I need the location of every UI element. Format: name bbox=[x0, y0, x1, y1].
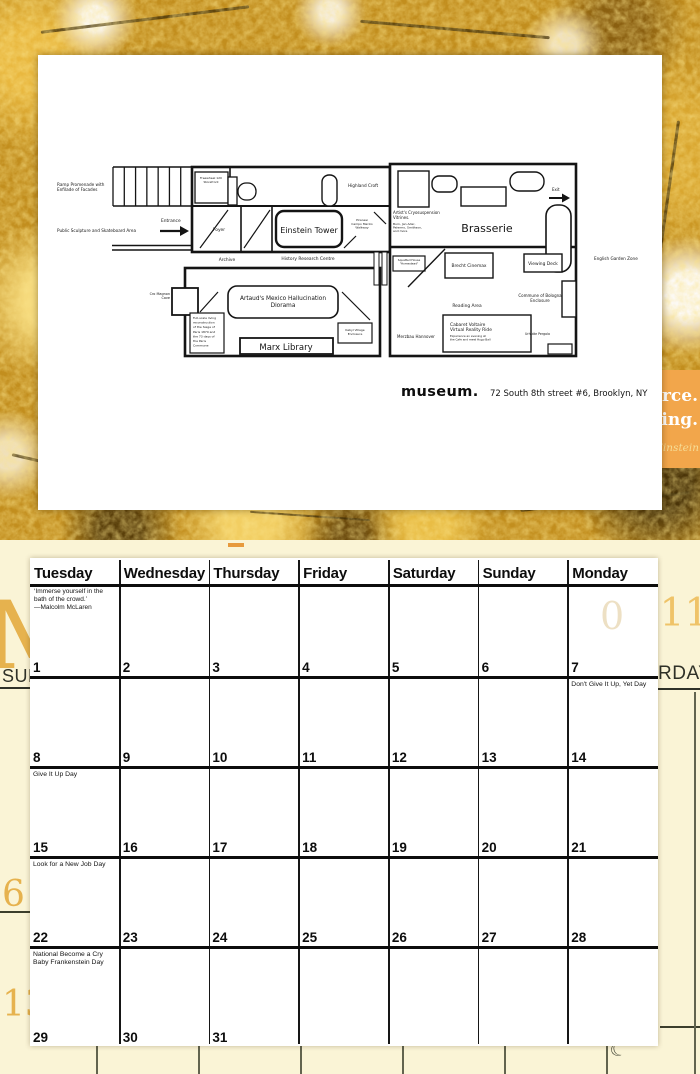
underlay-rule bbox=[0, 687, 30, 689]
peek-quote-attribution: Einstein bbox=[660, 442, 699, 454]
label-exit: Exit bbox=[552, 187, 560, 192]
date-18: 18 bbox=[302, 841, 317, 855]
cro-magnon-cave-room bbox=[172, 288, 198, 315]
calendar-grid-line bbox=[567, 560, 569, 1044]
day-header-monday: Monday bbox=[572, 565, 627, 582]
orange-tab-mark bbox=[228, 543, 244, 547]
fixture bbox=[382, 252, 387, 285]
quote-malcolm-mclaren: ‘Immerse yourself in the bath of the cro… bbox=[34, 588, 116, 612]
date-15: 15 bbox=[33, 841, 48, 855]
week-rule bbox=[30, 766, 658, 769]
peek-text-fragment: ding. bbox=[660, 410, 698, 430]
underlay-year-showthrough: 0 bbox=[600, 594, 624, 638]
day-header-tuesday: Tuesday bbox=[34, 565, 92, 582]
page-grid-line bbox=[606, 1046, 608, 1074]
label-highland-croft: Highland Croft bbox=[348, 183, 379, 188]
date-1: 1 bbox=[33, 661, 41, 675]
enclosure-bump bbox=[562, 281, 576, 317]
label-einstein-tower: Einstein Tower bbox=[280, 226, 338, 235]
week-rule bbox=[30, 946, 658, 949]
floor-plan-sheet: Ramp Promenade withEnfilade of FacadesPu… bbox=[38, 55, 662, 510]
week-rule bbox=[30, 856, 658, 859]
date-22: 22 bbox=[33, 931, 48, 945]
artaud-diorama-room bbox=[228, 286, 338, 318]
label-urhutte: Urhutte Pergola bbox=[525, 332, 550, 336]
date-27: 27 bbox=[482, 931, 497, 945]
date-30: 30 bbox=[123, 1031, 138, 1045]
museum-floor-plan: Ramp Promenade withEnfilade of FacadesPu… bbox=[46, 147, 666, 373]
fixture bbox=[374, 252, 379, 285]
date-11: 11 bbox=[302, 751, 316, 765]
furniture bbox=[461, 187, 506, 206]
event-note: Give It Up Day bbox=[33, 771, 116, 779]
header-rule bbox=[30, 584, 658, 588]
date-13: 13 bbox=[482, 751, 497, 765]
label-marx-library: Marx Library bbox=[259, 343, 312, 353]
museum-address: 72 South 8th street #6, Brooklyn, NY bbox=[490, 389, 647, 399]
furniture bbox=[398, 171, 429, 207]
label-ramp-promenade: Ramp Promenade withEnfilade of Facades bbox=[57, 182, 105, 192]
date-7: 7 bbox=[571, 661, 579, 675]
label-merzbau: Merzbau Hannover bbox=[397, 334, 435, 339]
calendar-page-scan: { "page": { "logo": "museum.", "address"… bbox=[0, 0, 700, 1074]
event-note: Don't Give It Up, Yet Day bbox=[571, 681, 654, 689]
day-header-sunday: Sunday bbox=[483, 565, 536, 582]
underlay-rule bbox=[658, 688, 700, 690]
underlying-page-peek: orce. ding. Einstein bbox=[660, 370, 700, 468]
date-9: 9 bbox=[123, 751, 131, 765]
label-cro-magnon: Cro MagnonCave bbox=[150, 292, 170, 300]
event-note: National Become a Cry Baby Frankenstein … bbox=[33, 951, 116, 967]
fixture bbox=[548, 344, 572, 354]
date-6: 6 bbox=[482, 661, 490, 675]
day-header-friday: Friday bbox=[303, 565, 347, 582]
furniture bbox=[432, 176, 457, 192]
date-14: 14 bbox=[571, 751, 586, 765]
date-26: 26 bbox=[392, 931, 407, 945]
event-note: Look for a New Job Day bbox=[33, 861, 116, 869]
calendar-sheet: TuesdayWednesdayThursdayFridaySaturdaySu… bbox=[30, 558, 658, 1046]
label-brecht-cinemax: Brecht Cinemax bbox=[451, 263, 486, 269]
fixture bbox=[322, 175, 337, 206]
date-10: 10 bbox=[212, 751, 227, 765]
label-archive: Archive bbox=[219, 257, 236, 263]
date-20: 20 bbox=[482, 841, 497, 855]
museum-logo: museum. bbox=[401, 384, 479, 400]
date-16: 16 bbox=[123, 841, 138, 855]
page-grid-line bbox=[300, 1046, 302, 1074]
furniture bbox=[510, 172, 544, 191]
label-public-sculpture: Public Sculpture and Skateboard Area bbox=[57, 228, 136, 233]
date-21: 21 bbox=[571, 841, 586, 855]
day-header-saturday: Saturday bbox=[393, 565, 456, 582]
label-cabaret-desc: Experience an evening atthe Cafe and mee… bbox=[450, 334, 491, 341]
page-grid-line bbox=[694, 692, 696, 1074]
week-rule bbox=[30, 676, 658, 679]
page-grid-line bbox=[96, 1046, 98, 1074]
fixture bbox=[228, 177, 237, 205]
date-25: 25 bbox=[302, 931, 317, 945]
peek-text-fragment: orce. bbox=[660, 386, 698, 406]
date-29: 29 bbox=[33, 1031, 48, 1045]
underlay-date-6: 6 bbox=[2, 874, 25, 915]
date-19: 19 bbox=[392, 841, 407, 855]
date-5: 5 bbox=[392, 661, 400, 675]
underlay-saturday-fragment: RDAY bbox=[658, 663, 700, 685]
date-2: 2 bbox=[123, 661, 131, 675]
calendar-grid-line bbox=[298, 560, 300, 1044]
day-header-thursday: Thursday bbox=[213, 565, 279, 582]
label-history-research: History Research Centre bbox=[281, 256, 335, 262]
label-reading-area: Reading Area bbox=[452, 303, 482, 309]
label-foyer: Foyer bbox=[213, 227, 225, 233]
label-english-garden: English Garden Zone bbox=[594, 256, 638, 261]
entrance-arrow-head bbox=[180, 226, 189, 236]
date-24: 24 bbox=[212, 931, 227, 945]
calendar-grid-line bbox=[478, 560, 480, 1044]
date-4: 4 bbox=[302, 661, 310, 675]
date-17: 17 bbox=[212, 841, 227, 855]
label-brasserie: Brasserie bbox=[461, 222, 513, 235]
label-kabyl-village: Kabyl VillageEnclosure bbox=[345, 328, 364, 336]
page-grid-line bbox=[402, 1046, 404, 1074]
page-grid-line bbox=[198, 1046, 200, 1074]
label-entrance: Entrance bbox=[161, 218, 181, 224]
label-squatted-house: Squatted House"Homestead" bbox=[398, 258, 421, 265]
page-grid-line bbox=[504, 1046, 506, 1074]
calendar-grid-line bbox=[388, 560, 390, 1044]
calendar-grid-line bbox=[119, 560, 121, 1044]
date-28: 28 bbox=[571, 931, 586, 945]
fixture bbox=[238, 183, 256, 200]
calendar-grid-line bbox=[209, 560, 211, 1044]
label-viewing-deck: Viewing Deck bbox=[528, 261, 558, 267]
date-3: 3 bbox=[212, 661, 220, 675]
date-8: 8 bbox=[33, 751, 41, 765]
date-31: 31 bbox=[212, 1031, 227, 1045]
date-12: 12 bbox=[392, 751, 407, 765]
date-23: 23 bbox=[123, 931, 138, 945]
day-header-wednesday: Wednesday bbox=[124, 565, 205, 582]
